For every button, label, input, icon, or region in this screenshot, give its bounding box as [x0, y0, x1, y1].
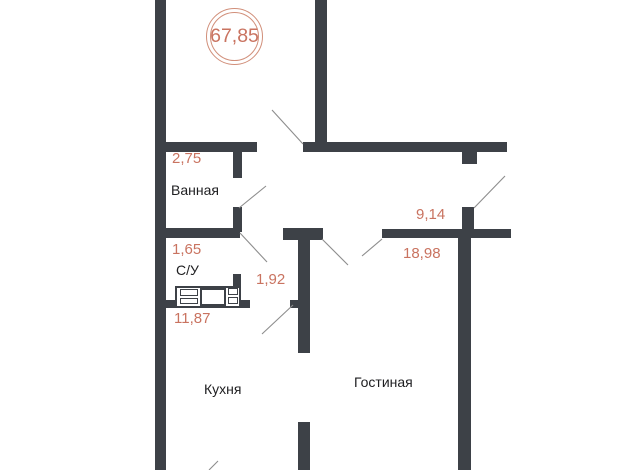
fixture-cell [180, 289, 198, 296]
door-swing-kitchen [262, 305, 293, 334]
door-swing-hall [272, 110, 303, 144]
room-label-bathroom: Ванная [171, 183, 219, 197]
area-label-kitchen: 11,87 [174, 311, 210, 326]
door-swing-living-left [322, 239, 348, 265]
fixture-cell [228, 288, 238, 295]
door-swing-living-right [362, 239, 382, 256]
door-swing-bottom-partial [209, 461, 218, 470]
area-label-passage: 1,92 [256, 272, 285, 287]
area-label-living: 18,98 [403, 246, 441, 261]
door-swing-corridor [474, 176, 505, 208]
fixture-wall-post [233, 274, 241, 286]
fixture-sink-basin [200, 288, 226, 306]
room-label-living: Гостиная [354, 375, 413, 389]
fixture-cell [228, 297, 238, 304]
vanity-fixture [175, 274, 241, 308]
room-label-toilet: С/У [176, 263, 199, 277]
door-lines-layer [0, 0, 644, 470]
door-swing-toilet [240, 233, 267, 262]
room-label-kitchen: Кухня [204, 382, 241, 396]
area-label-corridor: 9,14 [416, 207, 445, 222]
fixture-cell [180, 298, 198, 304]
area-label-bathroom: 2,75 [172, 151, 201, 166]
door-swing-bathroom [239, 186, 266, 208]
area-label-toilet: 1,65 [172, 242, 201, 257]
floor-plan: 67,85 2,75 1,65 1,92 11,87 9,14 18 [0, 0, 644, 470]
